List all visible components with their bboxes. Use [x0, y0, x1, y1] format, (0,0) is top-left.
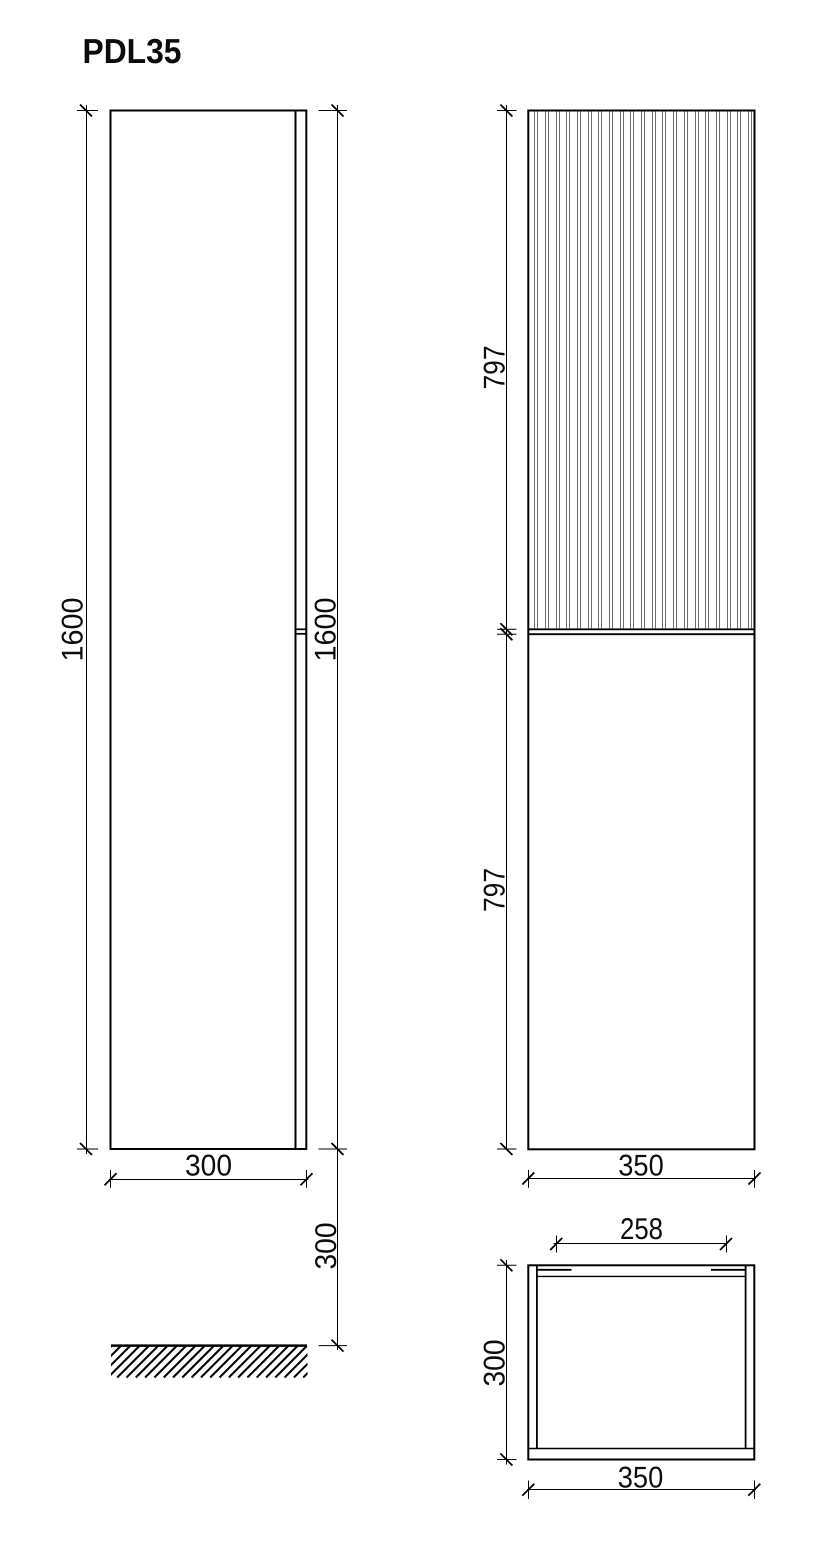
- svg-text:350: 350: [618, 1462, 664, 1495]
- svg-text:797: 797: [479, 346, 512, 390]
- svg-text:300: 300: [310, 1223, 343, 1270]
- svg-text:300: 300: [185, 1150, 232, 1183]
- svg-text:1600: 1600: [57, 598, 90, 662]
- svg-text:797: 797: [479, 868, 512, 912]
- svg-text:350: 350: [618, 1150, 664, 1183]
- svg-text:1600: 1600: [310, 598, 343, 662]
- svg-text:258: 258: [620, 1213, 663, 1246]
- svg-text:300: 300: [479, 1340, 512, 1387]
- svg-text:PDL35: PDL35: [83, 33, 182, 71]
